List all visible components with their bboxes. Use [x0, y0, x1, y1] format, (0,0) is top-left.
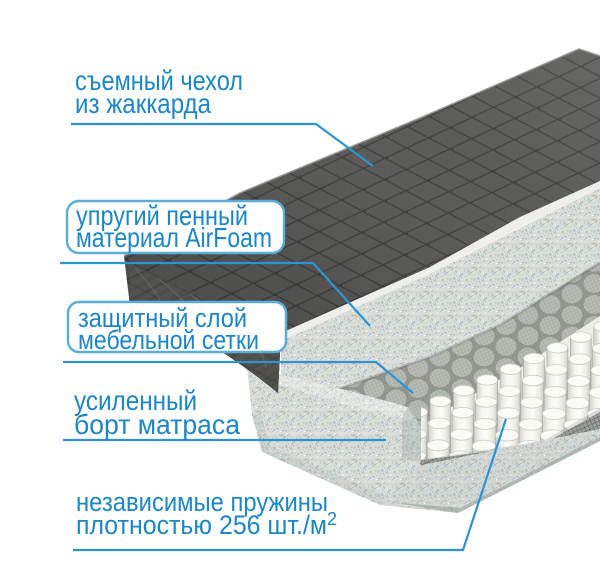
- svg-text:мебельной сетки: мебельной сетки: [78, 325, 259, 355]
- svg-text:плотностью 256 шт./м2: плотностью 256 шт./м2: [76, 509, 337, 540]
- svg-text:борт матраса: борт матраса: [74, 409, 240, 440]
- svg-text:из жаккарда: из жаккарда: [75, 88, 211, 119]
- svg-text:материал AirFoam: материал AirFoam: [76, 222, 272, 253]
